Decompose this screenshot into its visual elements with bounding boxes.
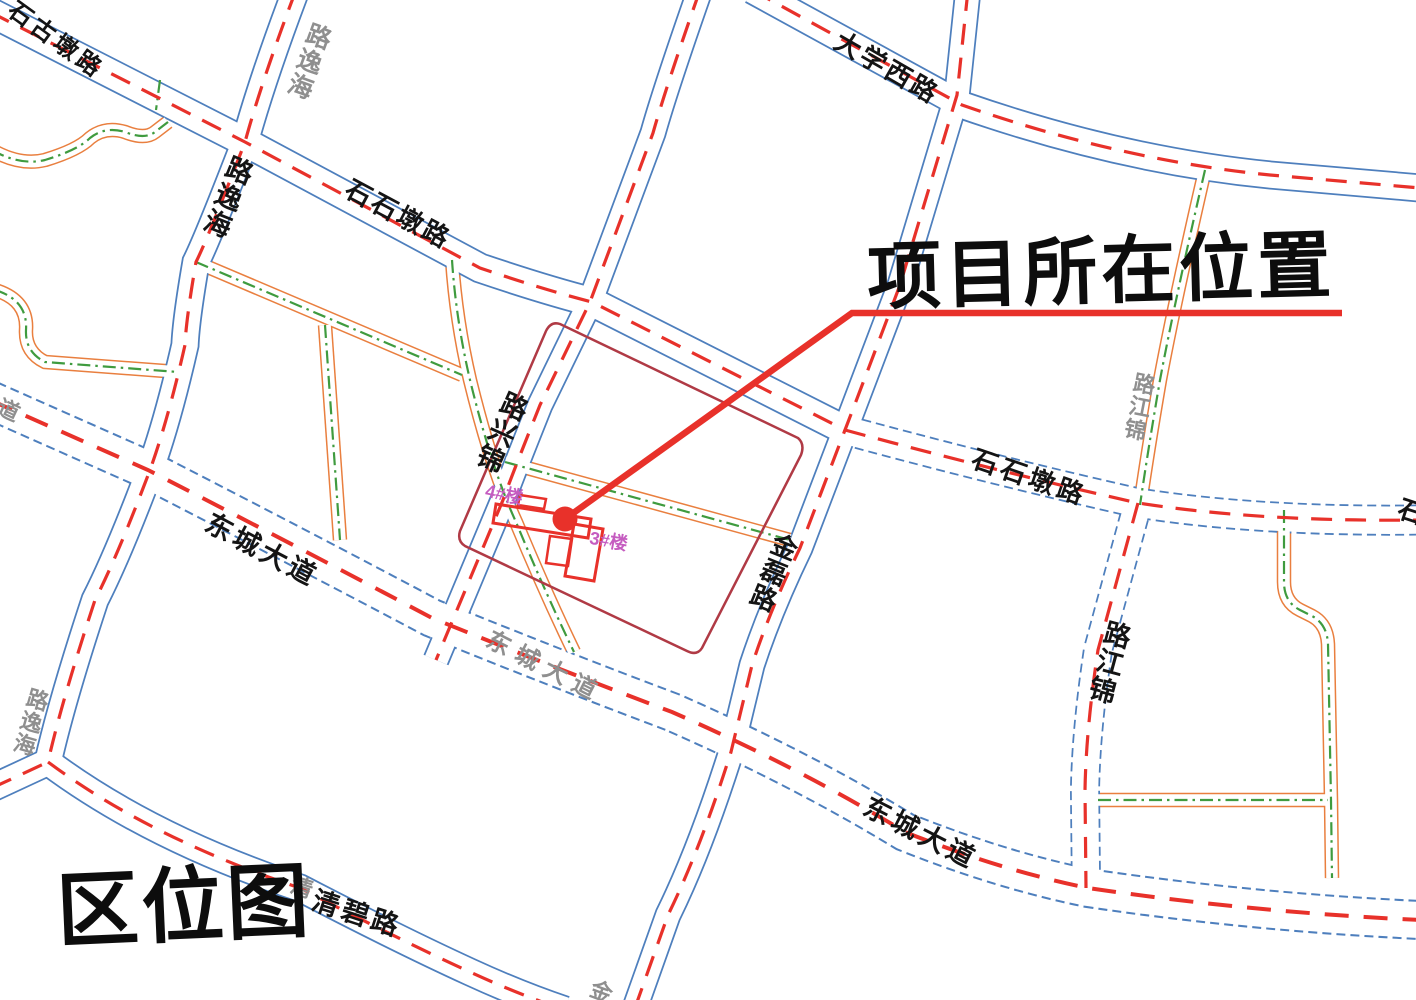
road-label: 清碧路 — [308, 884, 406, 942]
building-3-label: 3#楼 — [588, 527, 629, 554]
map-title: 区位图 — [55, 856, 314, 958]
project-location-dot — [553, 507, 578, 532]
road-surfaces — [0, 0, 1416, 1000]
annotation-project-location: 项目所在位置 — [866, 224, 1336, 319]
map-canvas: 石古墩路路逸海路逸海石石墩路大学西路路兴锦金磊路石石墩路东城大道东城大道东城大道… — [0, 0, 1416, 1000]
road-label: 石石墩路 — [967, 443, 1091, 511]
road-edge — [752, 0, 1416, 188]
location-map: 石古墩路路逸海路逸海石石墩路大学西路路兴锦金磊路石石墩路东城大道东城大道东城大道… — [0, 0, 1416, 1000]
road-label: 大学西路 — [829, 26, 944, 110]
road-label: 金 — [586, 976, 617, 1000]
